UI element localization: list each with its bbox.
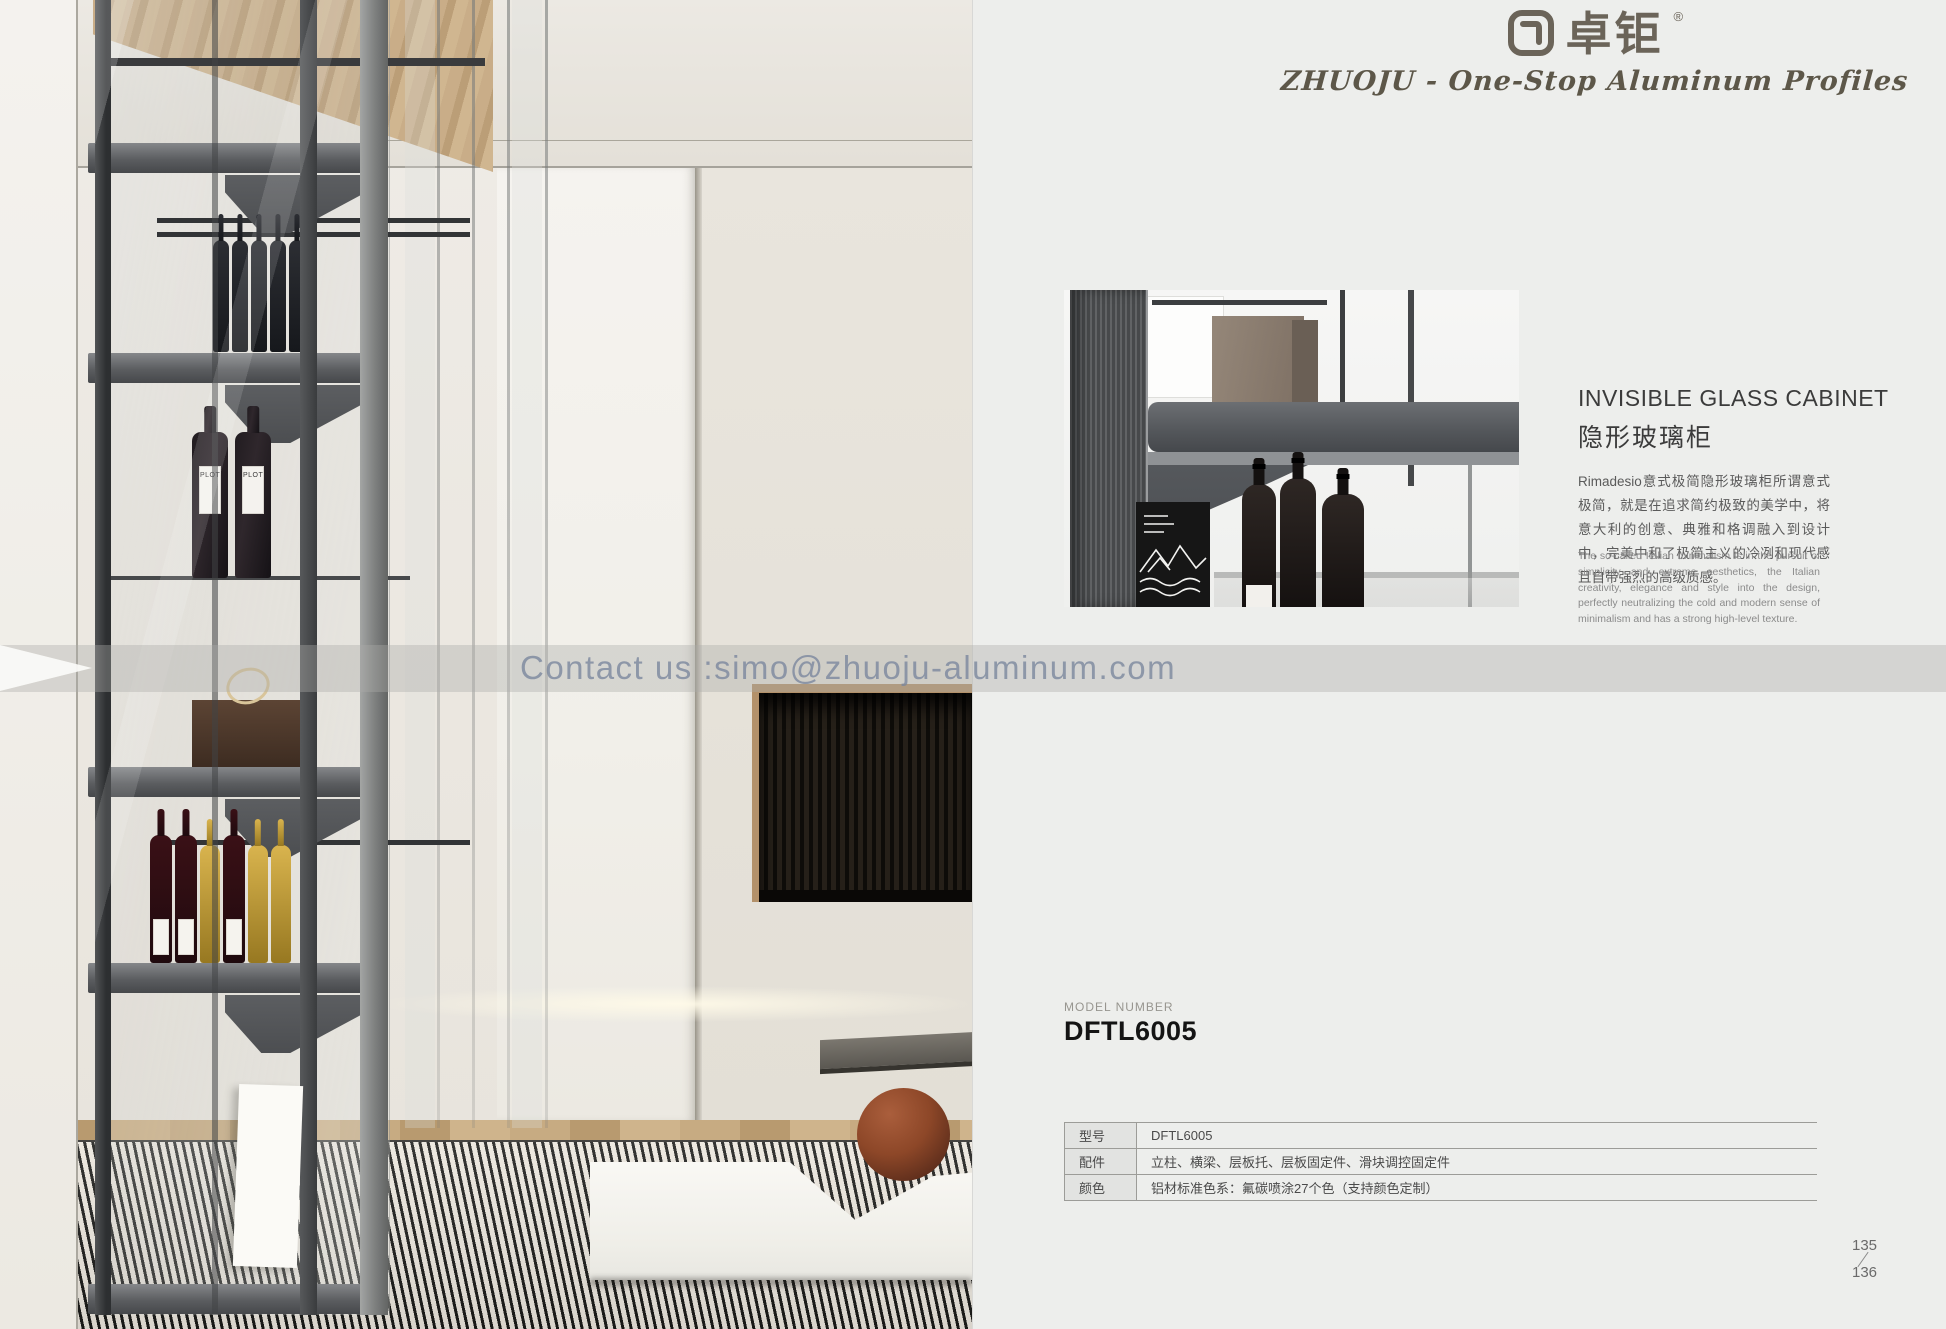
aluminum-beam: [1148, 402, 1519, 452]
mountain-art: [1136, 502, 1210, 607]
product-title-cn: 隐形玻璃柜: [1578, 418, 1713, 454]
niche-base: [759, 890, 972, 902]
spec-label: 颜色: [1065, 1175, 1137, 1201]
spec-label: 型号: [1065, 1123, 1137, 1149]
wine-bottle: [1280, 478, 1316, 607]
frame-bar: [1152, 300, 1327, 305]
table-shadow: [590, 1278, 972, 1286]
table-row: 配件 立柱、横梁、层板托、层板固定件、滑块调控固定件: [1065, 1149, 1818, 1175]
brand-name-cn: 卓钜: [1566, 8, 1664, 60]
niche-slats: [759, 693, 972, 902]
product-title-en: INVISIBLE GLASS CABINET: [1578, 385, 1889, 412]
spec-value: DFTL6005: [1137, 1123, 1818, 1149]
table-row: 型号 DFTL6005: [1065, 1123, 1818, 1149]
spec-value: 立柱、横梁、层板托、层板固定件、滑块调控固定件: [1137, 1149, 1818, 1175]
watermark-band: Contact us :simo@zhuoju-aluminum.com: [0, 645, 1946, 692]
wine-bottle: [1242, 484, 1276, 607]
registered-mark: ®: [1674, 8, 1684, 26]
spec-table: 型号 DFTL6005 配件 立柱、横梁、层板托、层板固定件、滑块调控固定件 颜…: [1064, 1122, 1817, 1201]
glass-panel-edge: [545, 0, 548, 1128]
catalog-page: PLOT PLOT: [0, 0, 1946, 1329]
brand-tagline: ZHUOJU - One-Stop Aluminum Profiles: [1280, 66, 1910, 97]
glass-panel-edge: [437, 0, 440, 1128]
page-number-bottom: 136: [1852, 1265, 1877, 1281]
product-description-en: The so-called Italian minimalism is in t…: [1578, 549, 1820, 628]
feature-wall: [702, 168, 972, 1120]
logo-icon: [1506, 8, 1556, 58]
slatted-media-niche: [752, 684, 972, 902]
led-glow: [380, 986, 972, 1022]
table-row: 颜色 铝材标准色系：氟碳喷涂27个色（支持颜色定制）: [1065, 1175, 1818, 1201]
spec-value: 铝材标准色系：氟碳喷涂27个色（支持颜色定制）: [1137, 1175, 1818, 1201]
wall-panel-seam: [695, 168, 702, 1120]
leaning-white-board: [233, 1084, 303, 1268]
glass-panel: [512, 0, 542, 1128]
glass-panel-edge: [507, 0, 510, 1128]
bottle-label: [1246, 585, 1272, 607]
glass-panel: [405, 0, 435, 1128]
arrow-right-icon: [0, 645, 92, 691]
watermark-contact-text: Contact us :simo@zhuoju-aluminum.com: [520, 649, 1176, 687]
beam-underside: [1148, 452, 1519, 465]
brand-logo: 卓钜 ® ZHUOJU - One-Stop Aluminum Profiles: [1281, 8, 1908, 97]
page-numbers: 135 136: [1852, 1238, 1877, 1281]
wooden-sphere: [857, 1088, 950, 1181]
frame-post: [1340, 290, 1345, 412]
wine-bottle: [1322, 494, 1364, 607]
model-number-label: MODEL NUMBER: [1064, 1000, 1174, 1014]
spec-label: 配件: [1065, 1149, 1137, 1175]
model-number-value: DFTL6005: [1064, 1016, 1197, 1047]
glass-panel-edge: [472, 0, 475, 1128]
art-print-box: [1136, 502, 1210, 607]
product-photo: [1064, 290, 1519, 607]
page-number-top: 135: [1852, 1238, 1877, 1254]
